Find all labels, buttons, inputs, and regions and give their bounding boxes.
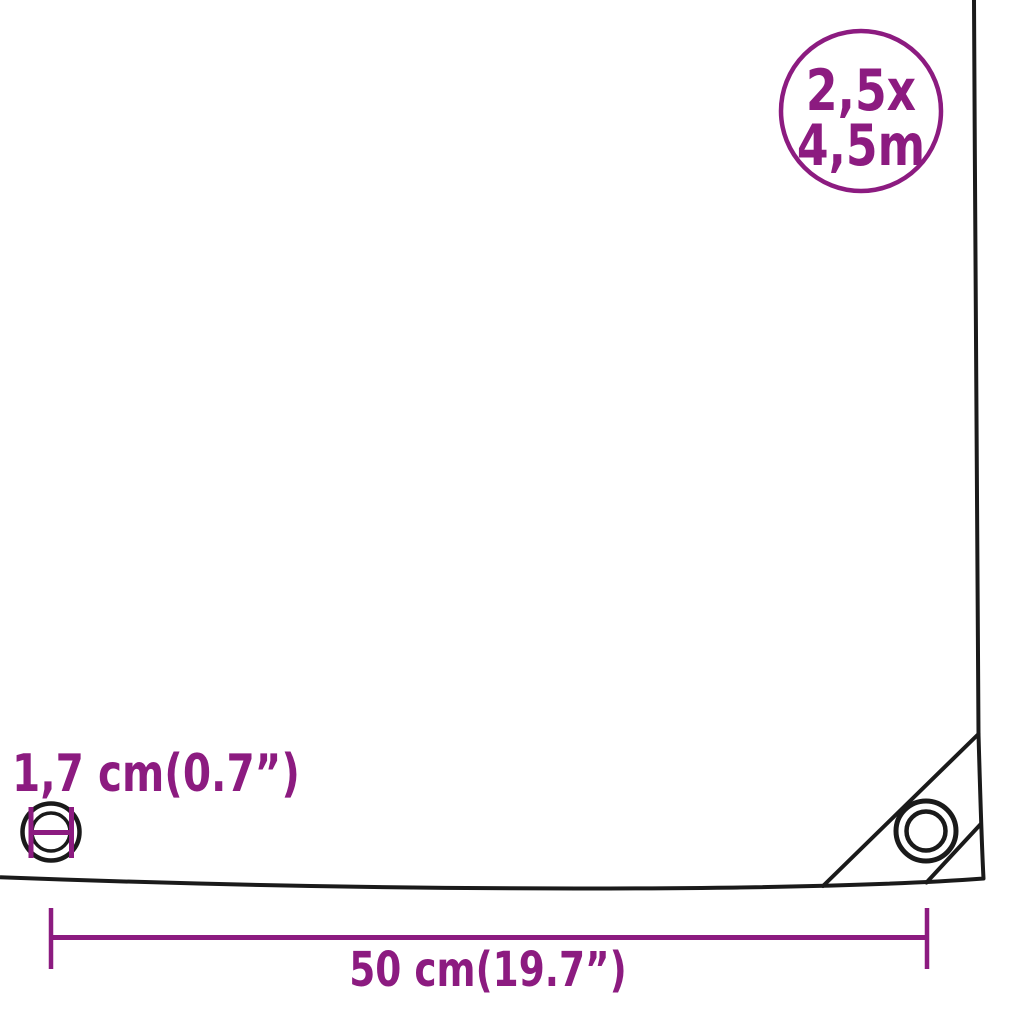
size-badge-text: 2,5x 4,5m [765,64,957,174]
grommet-inner-ring [907,812,946,851]
size-badge-width-label: 2,5x [765,64,957,119]
eyelet-diameter-label: 1,7 cm(0.7”) [12,748,300,800]
corner-grommet-icon [896,801,956,861]
eyelet-icon [23,804,80,861]
size-badge-length-label: 4,5m [765,119,957,174]
tarpaulin-dimension-diagram: 2,5x 4,5m 1,7 cm(0.7”) 50 cm(19.7”) [0,0,1024,1024]
grommet-spacing-label: 50 cm(19.7”) [176,946,800,994]
corner-fold-line [823,734,979,886]
